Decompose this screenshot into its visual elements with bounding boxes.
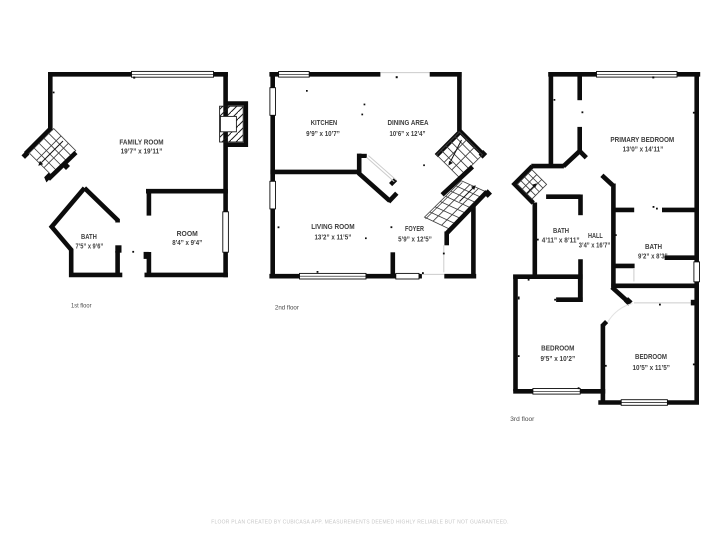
svg-text:BATH: BATH (81, 232, 97, 241)
svg-text:9’5” x 10’2”: 9’5” x 10’2” (540, 356, 575, 363)
svg-text:KITCHEN: KITCHEN (311, 118, 338, 127)
svg-text:4’11” x 8’11”: 4’11” x 8’11” (542, 237, 580, 244)
svg-text:BATH: BATH (645, 242, 662, 251)
svg-text:13’0” x 14’11”: 13’0” x 14’11” (623, 147, 664, 154)
svg-text:FLOOR PLAN CREATED BY CUBICASA: FLOOR PLAN CREATED BY CUBICASA APP. MEAS… (211, 520, 509, 526)
svg-text:9’9” x 10’7”: 9’9” x 10’7” (306, 131, 340, 138)
svg-text:FAMILY ROOM: FAMILY ROOM (119, 137, 163, 146)
svg-text:7’5” x 9’6”: 7’5” x 9’6” (76, 243, 104, 250)
svg-text:PRIMARY BEDROOM: PRIMARY BEDROOM (610, 135, 674, 144)
svg-text:BEDROOM: BEDROOM (541, 344, 574, 353)
svg-text:5’9” x 12’5”: 5’9” x 12’5” (398, 236, 432, 243)
svg-text:3rd floor: 3rd floor (510, 416, 535, 423)
svg-text:8’4” x 9’4”: 8’4” x 9’4” (172, 240, 202, 247)
svg-text:LIVING ROOM: LIVING ROOM (311, 222, 354, 231)
svg-text:10’6” x 12’4”: 10’6” x 12’4” (390, 131, 426, 138)
svg-text:10’5” x 11’5”: 10’5” x 11’5” (632, 365, 670, 372)
svg-text:19’7” x 19’11”: 19’7” x 19’11” (121, 149, 163, 156)
svg-text:BATH: BATH (553, 226, 569, 235)
svg-text:DINING AREA: DINING AREA (388, 118, 429, 127)
svg-text:ROOM: ROOM (177, 229, 198, 238)
svg-text:2nd floor: 2nd floor (275, 304, 300, 311)
svg-text:9’2” x 8’3”: 9’2” x 8’3” (638, 254, 668, 261)
svg-text:FOYER: FOYER (405, 224, 425, 233)
svg-text:13’2” x 11’5”: 13’2” x 11’5” (314, 234, 351, 241)
svg-text:HALL: HALL (588, 231, 603, 240)
svg-text:1st floor: 1st floor (71, 303, 92, 310)
svg-text:BEDROOM: BEDROOM (635, 352, 667, 361)
svg-text:3’4” x 16’7”: 3’4” x 16’7” (579, 243, 611, 250)
